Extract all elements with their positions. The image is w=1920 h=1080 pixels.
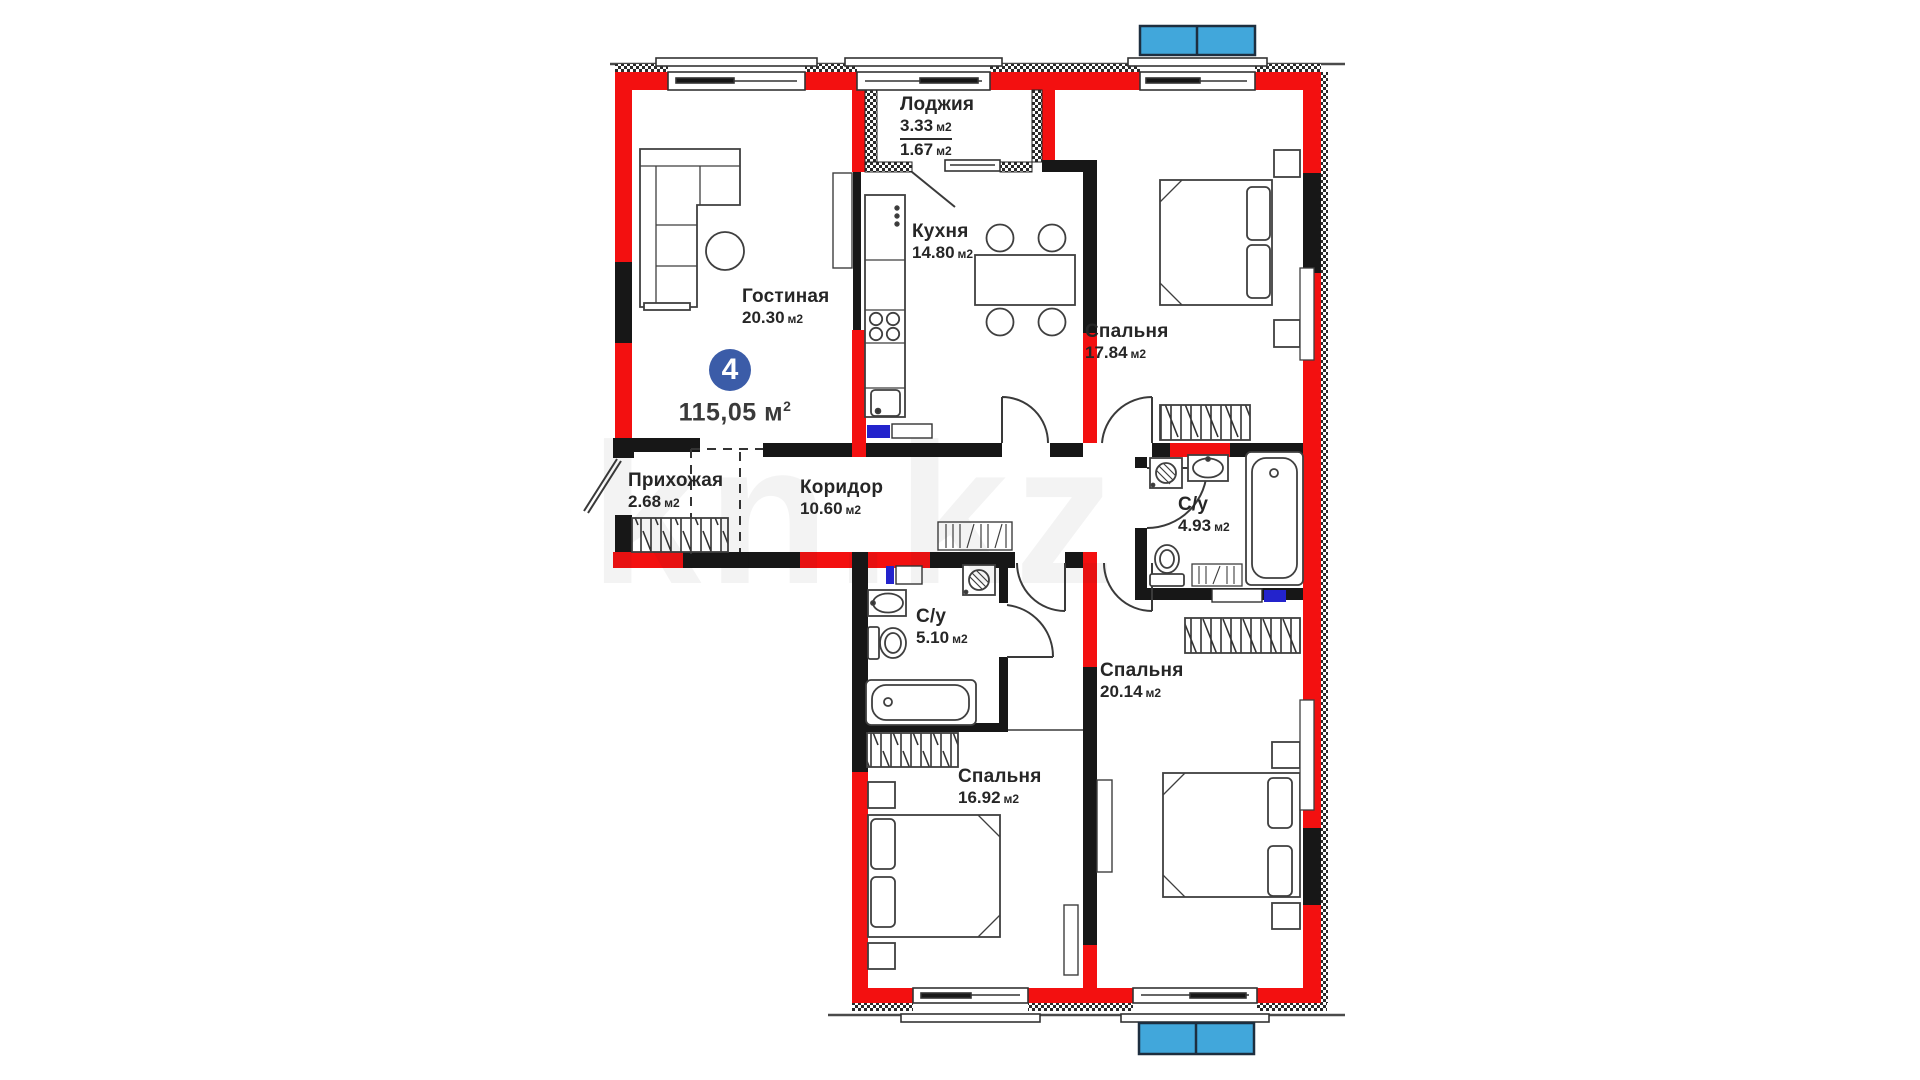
washbasin-icon: [1188, 455, 1228, 481]
loggia-door: [912, 172, 955, 207]
window-bedroom-20: [1121, 988, 1269, 1022]
hall-vestibule-door: [1017, 563, 1065, 611]
washing-machine-icon: [1150, 458, 1182, 488]
radiator-corridor: [938, 522, 1012, 550]
room-count-badge: 4: [709, 349, 751, 391]
washing-machine-icon-2: [963, 565, 995, 595]
bathtub-icon: [1246, 452, 1303, 585]
living-shelf: [833, 173, 852, 268]
kitchen-sink-icon: [871, 390, 900, 416]
entry-door: [584, 459, 621, 513]
dresser-bedroom-20: [1097, 780, 1112, 872]
wardrobe-bedroom-16: [867, 733, 958, 767]
toilet-icon: [1150, 545, 1184, 586]
balcony-marker-bottom: [1139, 1023, 1254, 1054]
bathtub-icon-2: [866, 680, 976, 725]
kitchen-door: [1002, 397, 1048, 443]
toilet-icon-2: [868, 627, 906, 659]
window-bedroom-16: [901, 988, 1040, 1022]
kitchen-counter: [865, 195, 905, 417]
bed-bedroom-17: [1160, 150, 1300, 347]
washbasin-icon-2: [868, 590, 906, 616]
kitchen-table-chairs: [975, 225, 1075, 336]
bathroom-510-door: [1007, 605, 1053, 657]
radiator-bedroom-20: [1300, 700, 1314, 810]
wardrobe-bedroom-17: [1160, 405, 1250, 440]
total-area: 115,05 м2: [650, 398, 820, 427]
radiator-bedroom-17: [1300, 268, 1314, 360]
bed-bedroom-16: [868, 782, 1000, 969]
window-living: [656, 58, 817, 90]
window-loggia-inner: [945, 160, 1000, 171]
bathroom-493-fixtures: [1150, 452, 1303, 586]
window-loggia-top: [845, 58, 1002, 90]
floor-plan-svg: [0, 0, 1920, 1080]
sofa: [640, 149, 740, 310]
balcony-marker-top: [1140, 26, 1255, 55]
towel-rail: [1192, 564, 1242, 586]
floor-plan-page: kn.kz Лоджия 3.33м2 1.67м2 Кухня 14.80м2…: [0, 0, 1920, 1080]
wardrobe-hallway: [632, 518, 728, 552]
bathroom-510-fixtures: [866, 565, 995, 725]
bedroom-17-door: [1102, 397, 1152, 443]
dresser-bedroom-16: [1064, 905, 1078, 975]
window-bedroom-17: [1128, 58, 1267, 90]
wardrobe-bedroom-20: [1185, 618, 1300, 653]
bed-bedroom-20: [1163, 742, 1300, 929]
side-table: [706, 232, 744, 270]
